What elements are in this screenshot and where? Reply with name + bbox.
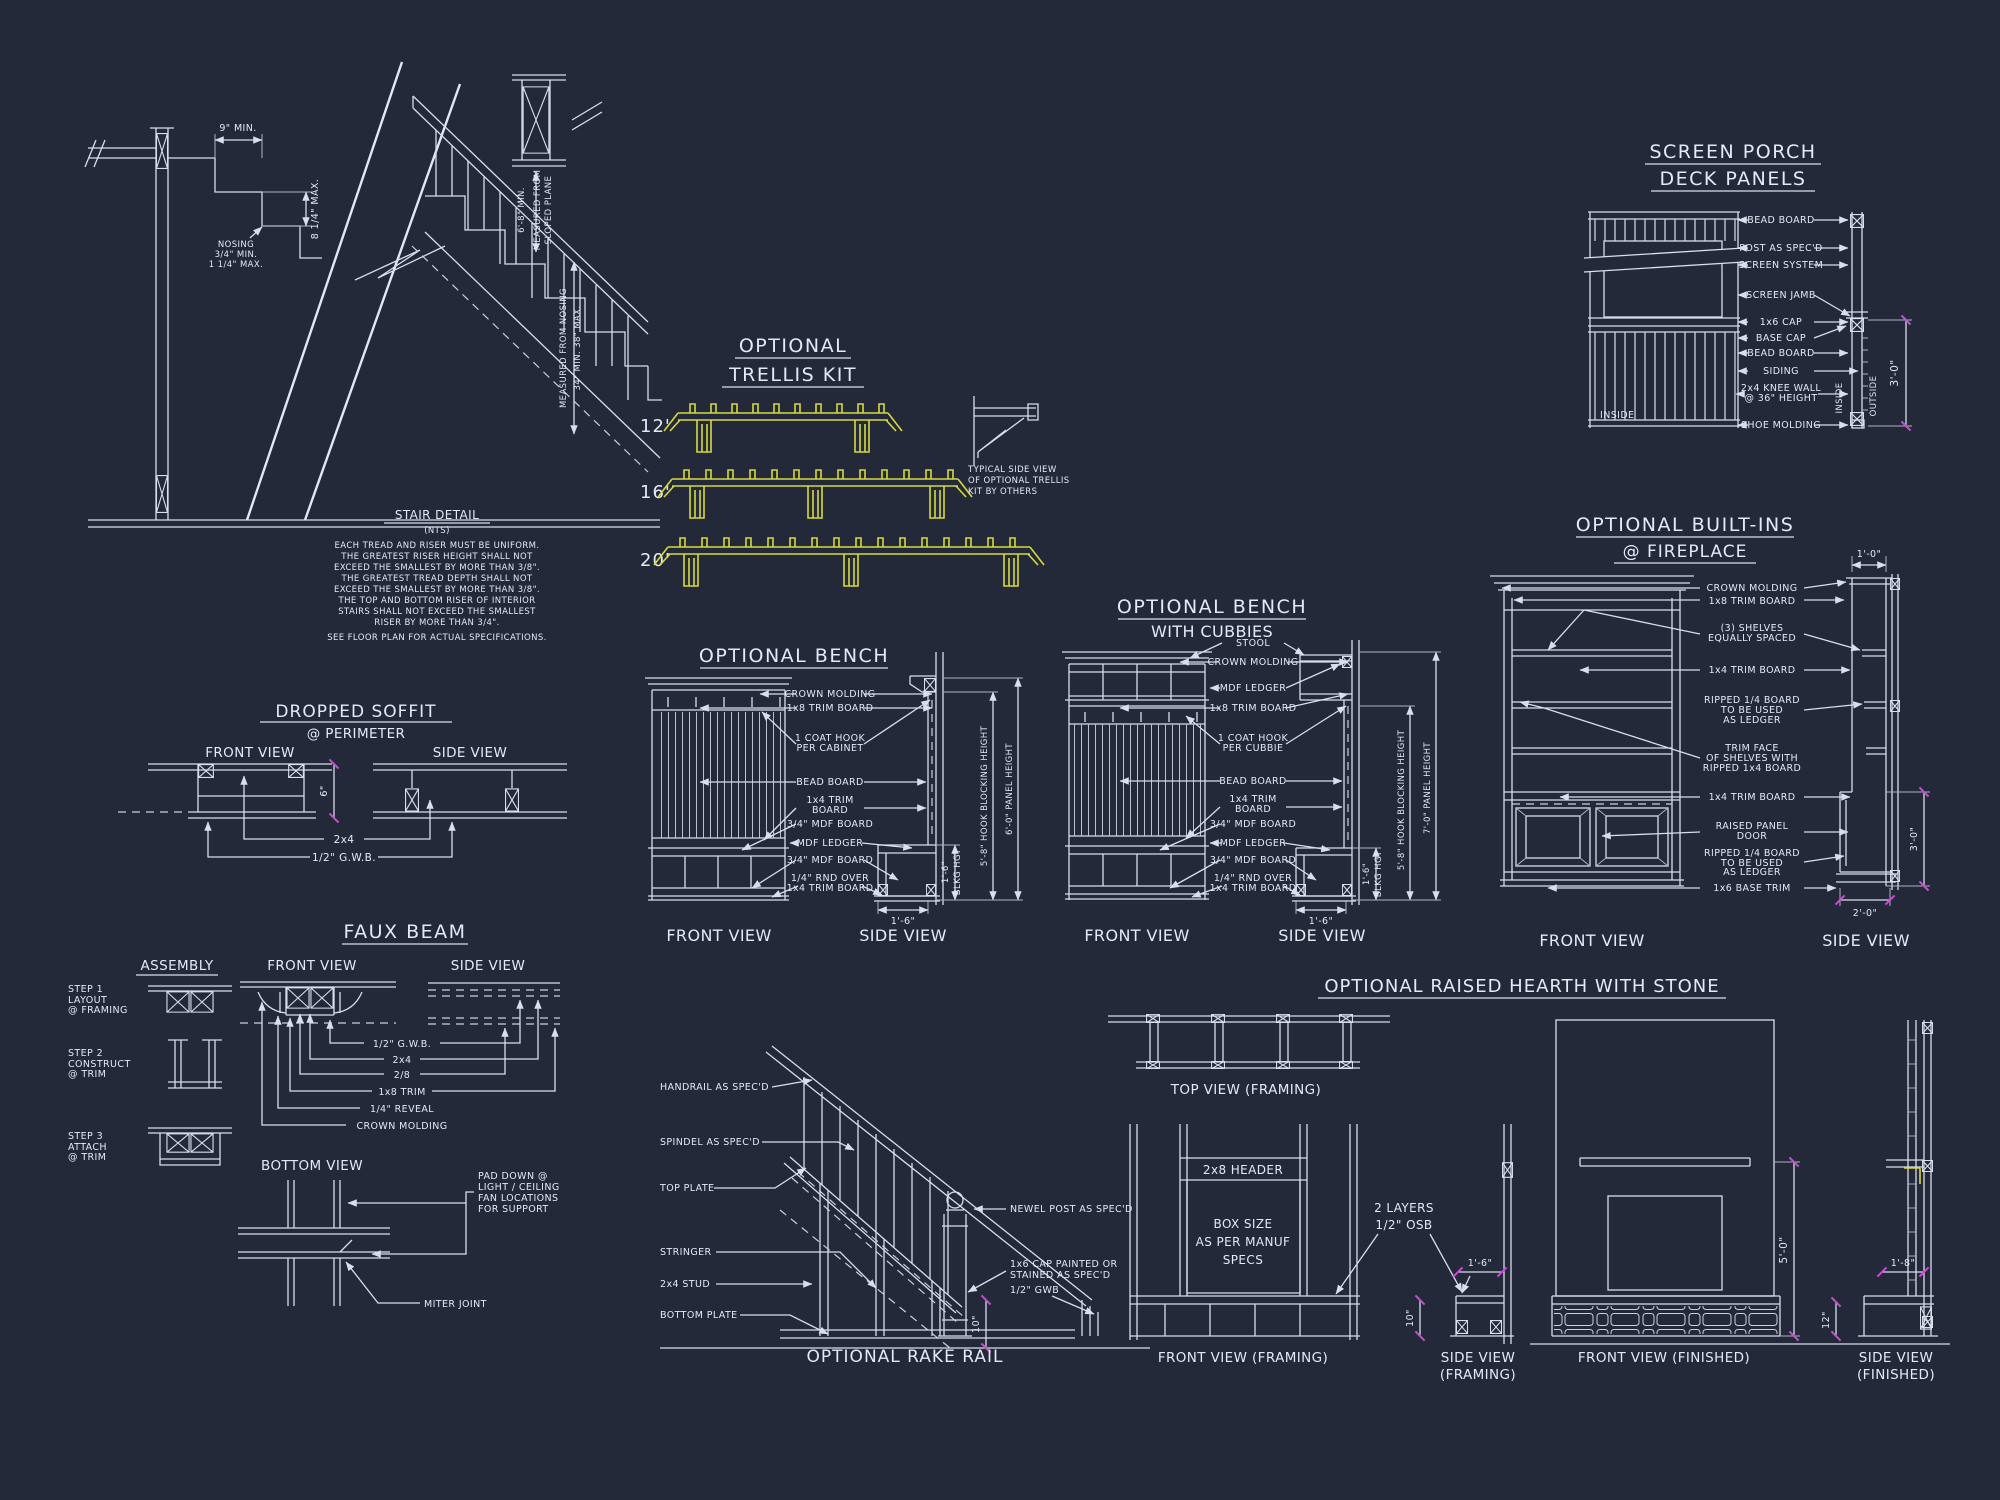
- trellis-title: OPTIONAL: [739, 335, 847, 357]
- callout-label: 1x8 TRIM BOARD: [1709, 596, 1796, 607]
- inside-label: INSIDE: [1600, 410, 1634, 421]
- builtins-side-view-label: SIDE VIEW: [1822, 931, 1910, 950]
- callout-label: TOP PLATE: [659, 1183, 714, 1194]
- callout-label: 1x4 TRIM BOARD: [787, 883, 874, 894]
- stair-note-line: RISER BY MORE THAN 3/4".: [374, 618, 499, 628]
- hearth-front-finished: [1552, 1020, 1780, 1336]
- cubbies-front-view-label: FRONT VIEW: [1084, 926, 1189, 945]
- hearth-side-finished: [1858, 1020, 1938, 1336]
- soffit-side-view: [373, 764, 567, 818]
- hearth-front-framing-label: FRONT VIEW (FRAMING): [1158, 1350, 1328, 1366]
- stair-headroom-dim: SLOPED PLANE: [544, 176, 554, 245]
- stair-handrail-dim: 34" MIN. 38" MAX.: [573, 306, 583, 391]
- soffit-gwb-label: 1/2" G.W.B.: [312, 852, 376, 864]
- stair-detail-section: 9" MIN. 8 1/4" MAX. NOSING 3/4" MIN. 1 1…: [85, 62, 662, 643]
- stair-note-line: EXCEED THE SMALLEST BY MORE THAN 3/8".: [334, 585, 540, 595]
- faux-beam-callouts: 1/2" G.W.B. 2x4 2/8 1x8 TRIM 1/4" REVEAL…: [262, 1000, 555, 1132]
- stair-note-line: THE GREATEST RISER HEIGHT SHALL NOT: [340, 552, 533, 562]
- soffit-framing-label: 2x4: [334, 834, 355, 846]
- rake-rail-section: HANDRAIL AS SPEC'D SPINDEL AS SPEC'D TOP…: [659, 1046, 1150, 1367]
- stair-nosing-note: 1 1/4" MAX.: [209, 260, 263, 270]
- pad-note: FOR SUPPORT: [478, 1204, 549, 1215]
- callout-label: SCREEN SYSTEM: [1739, 260, 1823, 271]
- trellis-side-note: KIT BY OTHERS: [968, 487, 1037, 497]
- callout-label: MDF LEDGER: [1220, 838, 1287, 849]
- callout-label: 3/4" MDF BOARD: [787, 855, 873, 866]
- builtins-title: OPTIONAL BUILT-INS: [1576, 514, 1795, 536]
- faux-bottom-view-label: BOTTOM VIEW: [261, 1158, 363, 1174]
- callout-label: HANDRAIL AS SPEC'D: [660, 1082, 769, 1093]
- callout-label: CROWN MOLDING: [1208, 657, 1299, 668]
- callout-label: STAINED AS SPEC'D: [1010, 1270, 1111, 1281]
- soffit-front-view-label: FRONT VIEW: [205, 745, 295, 761]
- assembly-label: ASSEMBLY: [141, 958, 214, 974]
- builtins-front-view-label: FRONT VIEW: [1539, 931, 1644, 950]
- screen-porch-section: SCREEN PORCH DECK PANELS INSIDE INSIDE O…: [1584, 141, 1912, 431]
- callout-label: 2x4: [393, 1055, 412, 1066]
- callout-label: CROWN MOLDING: [785, 689, 876, 700]
- callout-label: 1x8 TRIM BOARD: [787, 703, 874, 714]
- hearth-hearth-dim: 12": [1821, 1311, 1832, 1329]
- rake-base-dim: 10": [971, 1315, 982, 1333]
- builtins-front-view: [1490, 576, 1694, 886]
- builtins-title: @ FIREPLACE: [1623, 542, 1748, 562]
- step-label: @ FRAMING: [68, 1005, 128, 1016]
- builtins-side-dim: 3'-0": [1909, 827, 1920, 852]
- faux-beam-section: FAUX BEAM ASSEMBLY STEP 1 LAYOUT @ FRAMI…: [68, 921, 560, 1310]
- hearth-side-framing-label: (FRAMING): [1440, 1367, 1516, 1383]
- hearth-title: OPTIONAL RAISED HEARTH WITH STONE: [1324, 976, 1719, 997]
- stair-note-line: EXCEED THE SMALLEST BY MORE THAN 3/8".: [334, 563, 540, 573]
- callout-label: STRINGER: [660, 1247, 712, 1258]
- bench-title: OPTIONAL BENCH: [699, 645, 889, 667]
- builtins-bottom-dim: 2'-0": [1853, 908, 1878, 919]
- hearth-top-view: [1108, 1014, 1390, 1068]
- callout-label: NEWEL POST AS SPEC'D: [1010, 1204, 1133, 1215]
- faux-beam-title: FAUX BEAM: [343, 921, 466, 943]
- soffit-side-view-label: SIDE VIEW: [433, 745, 507, 761]
- soffit-front-view: [118, 764, 332, 818]
- hearth-side-finished-label: SIDE VIEW: [1859, 1350, 1933, 1366]
- millwork-details-sheet: 9" MIN. 8 1/4" MAX. NOSING 3/4" MIN. 1 1…: [0, 0, 2000, 1500]
- pad-note: LIGHT / CEILING: [478, 1182, 560, 1193]
- builtins-callouts: CROWN MOLDING 1x8 TRIM BOARD (3) SHELVES…: [1502, 582, 1862, 894]
- screen-porch-title: DECK PANELS: [1659, 168, 1806, 190]
- faux-front-view-label: FRONT VIEW: [267, 958, 357, 974]
- step-label: @ TRIM: [68, 1152, 106, 1163]
- stair-headroom-dim: MEASURED FROM: [533, 170, 543, 251]
- soffit-title: DROPPED SOFFIT: [275, 702, 436, 722]
- callout-label: BEAD BOARD: [1747, 215, 1814, 226]
- porch-height-dim: 3'-0": [1889, 360, 1901, 387]
- callout-label: PER CUBBIE: [1223, 743, 1284, 754]
- stair-dim-riser: 8 1/4" MAX.: [310, 179, 321, 239]
- stair-note-line: STAIRS SHALL NOT EXCEED THE SMALLEST: [338, 607, 536, 617]
- callout-label: DOOR: [1737, 831, 1767, 842]
- miter-joint-label: MITER JOINT: [424, 1299, 487, 1310]
- callout-label: 1/4" REVEAL: [370, 1104, 434, 1115]
- builtins-side-view: [1836, 574, 1900, 890]
- callout-label: 1x6 BASE TRIM: [1713, 883, 1790, 894]
- faux-side-view: [428, 983, 560, 1024]
- callout-label: 1x4 TRIM BOARD: [1210, 883, 1297, 894]
- callout-label: BEAD BOARD: [796, 777, 863, 788]
- callout-label: 1x4 TRIM BOARD: [1709, 792, 1796, 803]
- inside-label: INSIDE: [1835, 382, 1845, 413]
- blueprint-canvas: 9" MIN. 8 1/4" MAX. NOSING 3/4" MIN. 1 1…: [0, 0, 2000, 1500]
- callout-label: RIPPED 1x4 BOARD: [1703, 763, 1801, 774]
- callout-label: BOARD: [1235, 804, 1271, 815]
- stair-nosing-note: 3/4" MIN.: [215, 250, 258, 260]
- builtins-top-dim: 1'-0": [1857, 549, 1882, 560]
- hearth-height-dim: 5'-0": [1778, 1237, 1790, 1264]
- trellis-12ft: [664, 404, 902, 452]
- callout-label: CROWN MOLDING: [357, 1121, 448, 1132]
- hearth-box-note: BOX SIZE: [1214, 1217, 1273, 1231]
- cubbies-depth-dim: 1'-6": [1309, 916, 1334, 927]
- stair-nosing-note: NOSING: [218, 240, 254, 250]
- pad-note: FAN LOCATIONS: [478, 1193, 558, 1204]
- hearth-side-framing-label: SIDE VIEW: [1441, 1350, 1515, 1366]
- screen-porch-elevation: INSIDE: [1584, 212, 1744, 428]
- bench-cubbies-section: OPTIONAL BENCH WITH CUBBIES FRONT VIEW S…: [1062, 596, 1441, 945]
- hearth-box-note: AS PER MANUF: [1196, 1235, 1291, 1249]
- callout-label: 3/4" MDF BOARD: [1210, 819, 1296, 830]
- stair-note-line: EACH TREAD AND RISER MUST BE UNIFORM.: [335, 541, 540, 551]
- callout-label: BEAD BOARD: [1219, 776, 1286, 787]
- rake-rail-title: OPTIONAL RAKE RAIL: [807, 1347, 1004, 1367]
- callout-label: BASE CAP: [1756, 333, 1806, 344]
- callout-label: 1x6 CAP: [1760, 317, 1802, 328]
- callout-label: EQUALLY SPACED: [1708, 633, 1796, 644]
- stair-headroom-dim: 6'-8" MIN.: [517, 187, 527, 233]
- callout-label: 1/2" GWB: [1010, 1285, 1059, 1296]
- bench-hook-height-dim: 5'-8" HOOK BLOCKING HEIGHT: [980, 725, 990, 866]
- stair-note-line: THE GREATEST TREAD DEPTH SHALL NOT: [341, 574, 533, 584]
- bench-side-view-label: SIDE VIEW: [859, 926, 947, 945]
- cubbies-side-view-label: SIDE VIEW: [1278, 926, 1366, 945]
- hearth-side-finished-label: (FINISHED): [1857, 1367, 1935, 1383]
- hearth-header-label: 2x8 HEADER: [1203, 1163, 1283, 1177]
- bench-front-view: [645, 678, 792, 900]
- callout-label: 1/2" G.W.B.: [373, 1039, 431, 1050]
- hearth-front-framing: 2x8 HEADER BOX SIZE AS PER MANUF SPECS: [1130, 1124, 1360, 1340]
- callout-label: BOTTOM PLATE: [660, 1310, 738, 1321]
- stair-note-scale: (NTS): [424, 526, 450, 536]
- outside-label: OUTSIDE: [1869, 376, 1879, 417]
- bench-blkg-dim: 1'-6": [941, 861, 951, 883]
- callout-label: POST AS SPEC'D: [1739, 243, 1823, 254]
- callout-label: 3/4" MDF BOARD: [1210, 855, 1296, 866]
- faux-bottom-view: [238, 1180, 390, 1306]
- bench-depth-dim: 1'-6": [891, 916, 916, 927]
- trellis-16ft: [658, 470, 972, 518]
- cubbies-panel-height-dim: 7'-0" PANEL HEIGHT: [1423, 742, 1433, 834]
- cubbies-blkg-dim: BLKG HGT: [1374, 850, 1384, 897]
- cubbies-side-view: [1292, 640, 1359, 905]
- soffit-title: @ PERIMETER: [307, 726, 406, 742]
- callout-label: MDF LEDGER: [1220, 683, 1287, 694]
- callout-label: SPINDEL AS SPEC'D: [660, 1137, 760, 1148]
- cubbies-hook-height-dim: 5'-8" HOOK BLOCKING HEIGHT: [1397, 729, 1407, 870]
- step-label: STEP 2: [68, 1048, 103, 1059]
- trellis-side-view: [974, 396, 1038, 466]
- bench-blkg-dim: BLKG HGT: [953, 848, 963, 895]
- callout-label: BEAD BOARD: [1747, 348, 1814, 359]
- hearth-depth-dim: 1'-8": [1891, 1258, 1916, 1269]
- callout-label: MDF LEDGER: [797, 838, 864, 849]
- trellis-title: TRELLIS KIT: [728, 364, 857, 386]
- stair-dim-tread: 9" MIN.: [219, 123, 256, 134]
- faux-front-view: [240, 982, 396, 1023]
- rake-rail-callouts: HANDRAIL AS SPEC'D SPINDEL AS SPEC'D TOP…: [659, 1080, 1133, 1334]
- raised-hearth-section: OPTIONAL RAISED HEARTH WITH STONE TOP VI…: [1108, 976, 1950, 1383]
- soffit-drop-dim: 6": [319, 785, 330, 796]
- trellis-20ft: [654, 538, 1044, 586]
- callout-label: SHOE MOLDING: [1741, 420, 1821, 431]
- callout-label: 1x8 TRIM: [378, 1087, 425, 1098]
- callout-label: 1x6 CAP PAINTED OR: [1010, 1259, 1118, 1270]
- bench-panel-height-dim: 6'-0" PANEL HEIGHT: [1005, 743, 1015, 835]
- osb-note: 2 LAYERS: [1374, 1201, 1434, 1215]
- bench-side-view: [874, 652, 943, 905]
- screen-porch-title: SCREEN PORCH: [1649, 141, 1816, 163]
- dropped-soffit-section: DROPPED SOFFIT @ PERIMETER FRONT VIEW SI…: [118, 702, 567, 864]
- stair-handrail-dim: MEASURED FROM NOSING: [559, 288, 569, 408]
- cubbies-front-view: [1062, 652, 1212, 900]
- trellis-side-note: TYPICAL SIDE VIEW: [967, 465, 1057, 475]
- callout-label: SIDING: [1763, 366, 1799, 377]
- hearth-toe-dim: 10": [1405, 1309, 1416, 1327]
- hearth-top-view-label: TOP VIEW (FRAMING): [1170, 1082, 1321, 1098]
- faux-side-view-label: SIDE VIEW: [451, 958, 525, 974]
- optional-bench-section: OPTIONAL BENCH FRONT VIEW SIDE VIEW 1'-6…: [645, 645, 1023, 945]
- callout-label: 2/8: [394, 1070, 411, 1081]
- hearth-box-note: SPECS: [1223, 1253, 1263, 1267]
- callout-label: PER CABINET: [796, 743, 863, 754]
- callout-label: 2x4 STUD: [660, 1279, 710, 1290]
- step-label: @ TRIM: [68, 1069, 106, 1080]
- callout-label: BOARD: [812, 805, 848, 816]
- hearth-side-framing: [1450, 1124, 1514, 1344]
- bench-cubbies-title: OPTIONAL BENCH: [1117, 596, 1307, 618]
- callout-label: 1x8 TRIM BOARD: [1210, 703, 1297, 714]
- callout-label: AS LEDGER: [1723, 715, 1781, 726]
- callout-label: SCREEN JAMB: [1746, 290, 1816, 301]
- step-label: STEP 1: [68, 984, 103, 995]
- stair-note-footer: SEE FLOOR PLAN FOR ACTUAL SPECIFICATIONS…: [327, 633, 547, 643]
- step-label: STEP 3: [68, 1131, 103, 1142]
- trellis-kit-section: OPTIONAL TRELLIS KIT 12' 16' 20' TYPICAL…: [640, 335, 1070, 586]
- callout-label: 3/4" MDF BOARD: [787, 819, 873, 830]
- stair-note-title: STAIR DETAIL: [395, 508, 479, 522]
- osb-note: 1/2" OSB: [1375, 1218, 1432, 1232]
- bench-front-view-label: FRONT VIEW: [666, 926, 771, 945]
- cubbies-blkg-dim: 1'-6": [1362, 863, 1372, 885]
- pad-note: PAD DOWN @: [478, 1171, 548, 1182]
- callout-label: 1x4 TRIM BOARD: [1709, 665, 1796, 676]
- hearth-seat-dim: 1'-6": [1468, 1258, 1493, 1269]
- hearth-front-finished-label: FRONT VIEW (FINISHED): [1578, 1350, 1750, 1366]
- callout-label: CROWN MOLDING: [1707, 583, 1798, 594]
- builtins-section: OPTIONAL BUILT-INS @ FIREPLACE 1'-0" FRO…: [1490, 514, 1930, 950]
- trellis-size-label: 20': [640, 550, 671, 571]
- trellis-side-note: OF OPTIONAL TRELLIS: [968, 476, 1070, 486]
- callout-label: STOOL: [1236, 638, 1270, 649]
- callout-label: AS LEDGER: [1723, 867, 1781, 878]
- stair-note-line: THE TOP AND BOTTOM RISER OF INTERIOR: [337, 596, 535, 606]
- callout-label: @ 36" HEIGHT: [1744, 393, 1817, 404]
- trellis-size-label: 12': [640, 416, 671, 437]
